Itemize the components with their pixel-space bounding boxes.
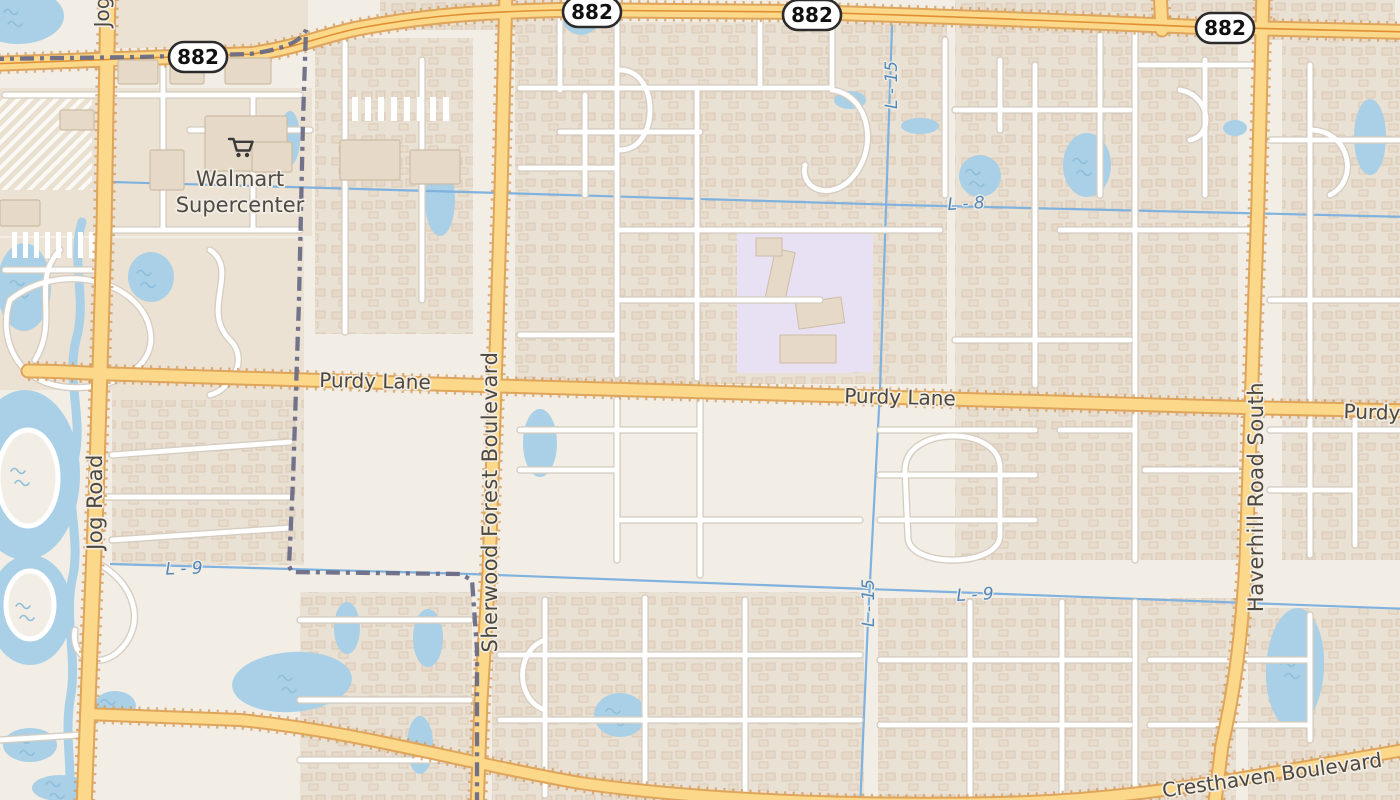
road-label-purdy-lane-west: Purdy Lane <box>319 368 431 394</box>
water-label-l9-left: L - 9 <box>165 558 203 579</box>
road-label-purdy-east: Purdy <box>1343 399 1400 425</box>
map-viewport[interactable]: 882 882 882 882 Purdy Lane Purdy Lane Pu… <box>0 0 1400 800</box>
water-label-l15-bottom: L - 15 <box>859 579 879 627</box>
road-label-haverhill-road-south: Haverhill Road South <box>1244 382 1268 612</box>
poi-label-line2: Supercenter <box>176 193 305 217</box>
water-label-l15-top: L - 15 <box>882 61 902 109</box>
map-canvas[interactable]: 882 882 882 882 Purdy Lane Purdy Lane Pu… <box>0 0 1400 800</box>
road-label-jog-road: Jog Road <box>83 454 107 552</box>
route-shield-882-top-left: 882 <box>563 0 621 27</box>
road-label-purdy-lane-mid: Purdy Lane <box>844 383 956 410</box>
road-label-jog-top: Jog <box>90 0 114 29</box>
shield-number: 882 <box>791 3 833 27</box>
water-label-l8: L - 8 <box>947 193 985 215</box>
route-shield-882-west: 882 <box>169 42 227 72</box>
route-shield-882-top-mid: 882 <box>783 0 841 30</box>
shield-number: 882 <box>177 45 219 69</box>
shield-number: 882 <box>1204 16 1246 40</box>
poi-label-line1: Walmart <box>196 167 284 191</box>
shield-number: 882 <box>571 0 613 24</box>
road-label-sherwood-forest-boulevard: Sherwood Forest Boulevard <box>478 352 502 653</box>
route-shield-882-top-right: 882 <box>1196 13 1254 43</box>
water-label-l9-right: L - 9 <box>956 584 994 606</box>
